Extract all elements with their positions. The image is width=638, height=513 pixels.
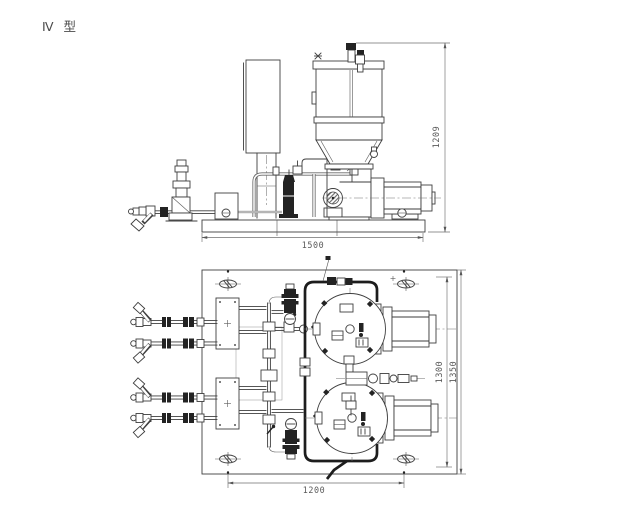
injector-valve-side (279, 170, 298, 218)
drawing-sheet: Ⅳ 型 (0, 0, 638, 513)
dim-1500-text: 1500 (302, 240, 325, 250)
junction-block-lower (216, 378, 239, 429)
junction-block-upper (216, 298, 239, 349)
plan-view: 1200 1300 1350 (131, 256, 466, 495)
motor-plan-upper (383, 307, 436, 351)
dim-1350-text: 1350 (448, 361, 458, 384)
vent-mark (315, 53, 322, 59)
motor-plan-lower (385, 396, 438, 440)
pump-coupling (324, 189, 343, 218)
valve-column (166, 160, 197, 221)
dim-1200-text: 1200 (303, 485, 326, 495)
page-title: Ⅳ 型 (42, 19, 79, 34)
hopper (316, 140, 382, 164)
control-panel (244, 60, 281, 218)
technical-drawing-svg: Ⅳ 型 (0, 0, 638, 513)
base-frame-side (202, 220, 425, 236)
dim-1500: 1500 (202, 233, 423, 250)
dim-1209-text: 1209 (431, 126, 441, 149)
dim-1300-text: 1300 (434, 361, 444, 384)
dim-1200: 1200 (228, 474, 404, 495)
junction-box-side (215, 193, 238, 219)
elevation-view: 1500 1209 (129, 43, 451, 250)
